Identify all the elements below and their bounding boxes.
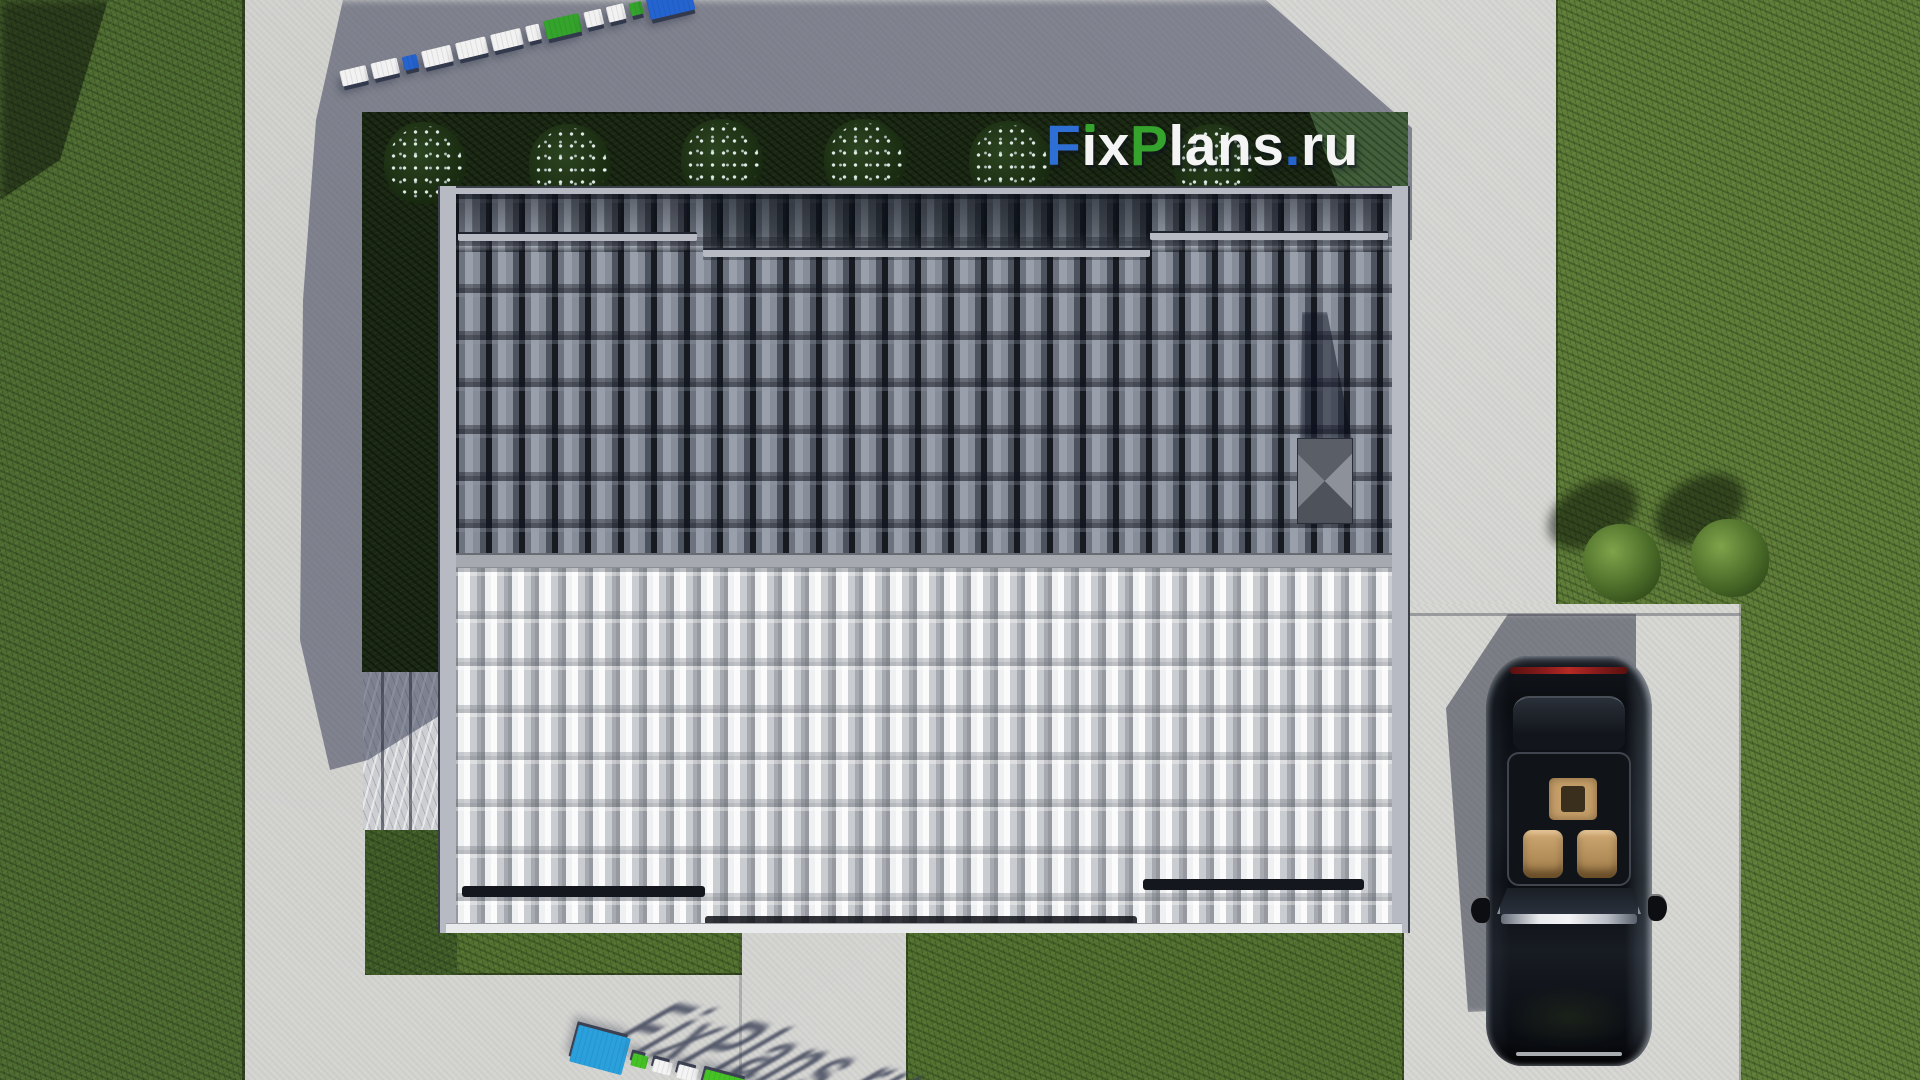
car-rear-window — [1513, 696, 1625, 750]
roof-fascia — [446, 923, 1402, 933]
watermark-letter: F — [1046, 118, 1081, 175]
car-cowl-trim — [1501, 914, 1637, 924]
black-sedan-top-view — [1486, 656, 1652, 1066]
car-taillight-strip — [1510, 667, 1628, 674]
roof-slope-shaded — [456, 194, 1392, 568]
garden-bush — [1691, 519, 1769, 597]
roof-snow-guard — [1150, 231, 1388, 240]
logo-block-a — [490, 27, 524, 51]
watermark: FıxPlans.ru — [1046, 118, 1359, 175]
roof-snow-guard — [458, 232, 697, 241]
house-roof — [438, 186, 1410, 933]
logo-block-i — [652, 1058, 674, 1075]
roof-snow-guard — [703, 248, 1150, 257]
car-front-trim — [1516, 1052, 1622, 1056]
logo-block-i-dot — [630, 1052, 649, 1069]
watermark-letter: . — [1284, 118, 1300, 175]
car-front-seat — [1577, 830, 1617, 878]
logo-block-r — [370, 57, 400, 79]
roof-slope-sunlit — [456, 568, 1392, 923]
car-side-mirror — [1648, 894, 1667, 921]
grass-lawn-bottom — [906, 925, 1404, 1080]
logo-block-i-dot — [628, 0, 644, 16]
watermark-letter: s — [1252, 118, 1284, 175]
logo-block-n — [455, 36, 489, 60]
logo-block-i — [606, 3, 627, 23]
logo-block-dot — [402, 54, 420, 71]
car-rear-seat — [1549, 778, 1597, 820]
watermark-i-dot — [1085, 124, 1094, 133]
watermark-letter: r — [1301, 118, 1324, 175]
watermark-letter: x — [1098, 118, 1130, 175]
chimney-shadow — [1300, 312, 1352, 440]
gutter-segment — [462, 886, 705, 897]
aerial-house-render: FixPlans.ru FıxPlans.ru — [0, 0, 1920, 1080]
logo-block-x — [583, 8, 604, 28]
watermark-letter: ı — [1081, 118, 1097, 175]
roof-eave-right — [1392, 186, 1410, 933]
logo-block-P — [701, 1069, 748, 1080]
car-glass-roof — [1507, 752, 1631, 886]
logo-block-l — [525, 23, 542, 42]
watermark-letter: a — [1185, 118, 1217, 175]
logo-block-P — [543, 12, 582, 39]
logo-block-s — [421, 44, 454, 68]
car-windshield — [1497, 888, 1641, 914]
roof-eave-left — [438, 186, 456, 933]
watermark-letter: P — [1130, 118, 1169, 175]
gutter-segment — [1143, 879, 1364, 890]
logo-block-x — [676, 1064, 700, 1080]
roof-ridge-line — [456, 553, 1392, 568]
garden-bush — [1583, 524, 1661, 602]
chimney — [1297, 438, 1353, 524]
logo-block-u — [339, 65, 369, 87]
car-front-seat — [1523, 830, 1563, 878]
watermark-letter: u — [1324, 118, 1359, 175]
watermark-letter: l — [1168, 118, 1184, 175]
watermark-letter: n — [1217, 118, 1252, 175]
car-side-mirror — [1471, 896, 1490, 923]
